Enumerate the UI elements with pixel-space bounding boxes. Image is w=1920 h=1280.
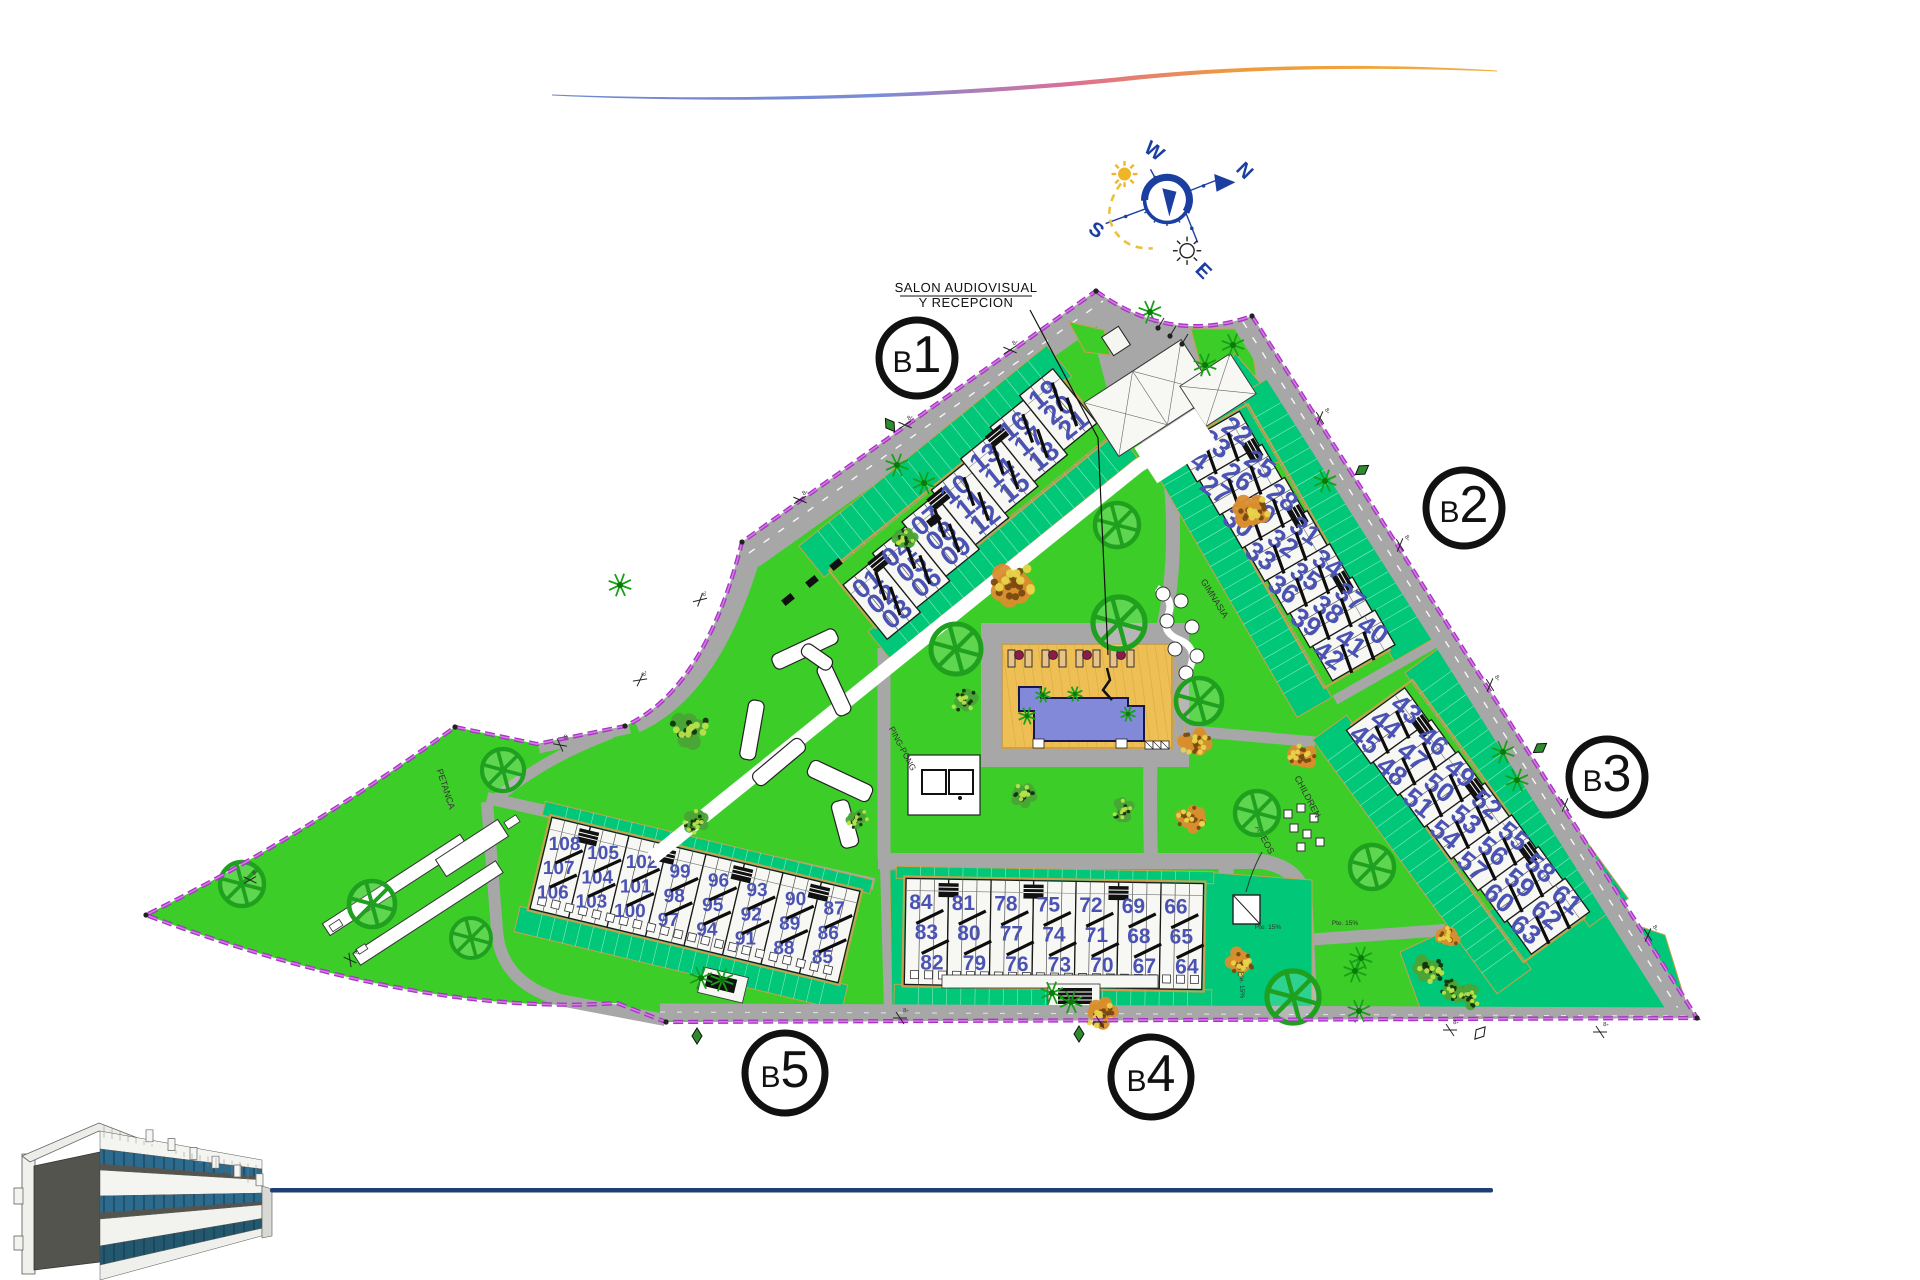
svg-text:72: 72	[1079, 894, 1102, 917]
svg-text:66: 66	[1164, 896, 1187, 919]
svg-text:75: 75	[1037, 893, 1061, 916]
svg-text:77: 77	[1000, 923, 1023, 946]
svg-text:64: 64	[1175, 956, 1199, 979]
svg-text:90: 90	[785, 889, 806, 910]
svg-text:74: 74	[1042, 923, 1066, 946]
svg-text:78: 78	[994, 893, 1018, 916]
svg-text:Pte. 15%: Pte. 15%	[1255, 924, 1282, 931]
svg-text:8+: 8+	[1603, 1021, 1609, 1028]
svg-text:68: 68	[1127, 925, 1151, 948]
svg-text:8+: 8+	[1453, 1019, 1459, 1026]
svg-text:99: 99	[669, 861, 690, 882]
svg-text:67: 67	[1133, 955, 1156, 978]
svg-text:Pte. 15%: Pte. 15%	[1238, 972, 1246, 999]
svg-text:73: 73	[1048, 953, 1071, 976]
svg-text:71: 71	[1085, 924, 1109, 947]
svg-text:Y RECEPCION: Y RECEPCION	[919, 295, 1014, 310]
svg-text:105: 105	[587, 843, 619, 864]
svg-text:8+: 8+	[1103, 1011, 1109, 1018]
svg-text:96: 96	[708, 871, 729, 892]
svg-text:83: 83	[915, 921, 938, 944]
svg-text:84: 84	[909, 891, 933, 914]
svg-text:81: 81	[952, 892, 976, 915]
svg-text:80: 80	[957, 922, 980, 945]
svg-text:76: 76	[1005, 953, 1028, 976]
svg-text:8+: 8+	[903, 1007, 909, 1014]
svg-text:108: 108	[549, 834, 581, 855]
svg-text:79: 79	[963, 952, 986, 975]
svg-text:93: 93	[746, 880, 767, 901]
svg-text:82: 82	[920, 951, 943, 974]
svg-text:87: 87	[823, 898, 844, 919]
svg-text:70: 70	[1090, 954, 1113, 977]
svg-text:65: 65	[1170, 926, 1194, 949]
svg-text:69: 69	[1122, 895, 1145, 918]
svg-text:SALON AUDIOVISUAL: SALON AUDIOVISUAL	[895, 280, 1038, 295]
svg-text:Pte. 15%: Pte. 15%	[1332, 920, 1359, 927]
